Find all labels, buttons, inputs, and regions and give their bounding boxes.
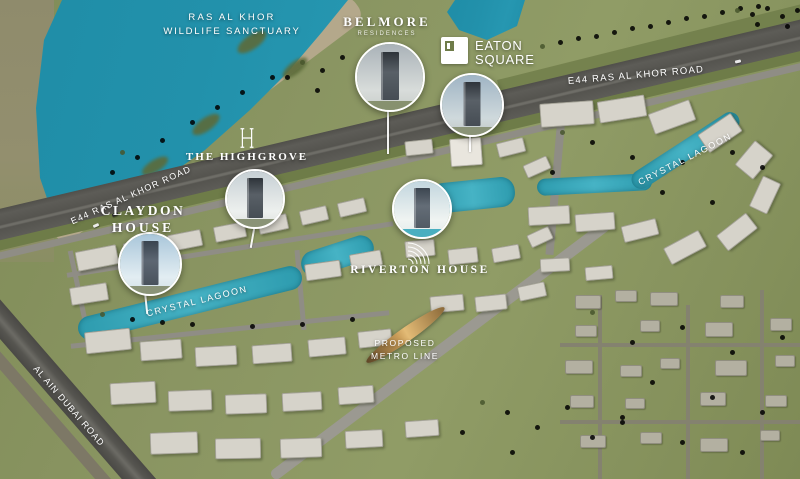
building	[528, 205, 571, 226]
building	[640, 432, 662, 444]
eaton-ground	[442, 127, 502, 135]
grid-road	[760, 290, 764, 479]
eaton-square-building	[449, 137, 483, 167]
building	[251, 343, 292, 365]
building	[575, 295, 601, 309]
building	[215, 438, 261, 460]
sanctuary-label-line1: RAS AL KHOR	[157, 12, 307, 23]
building	[539, 100, 595, 128]
eaton-label-line1: EATON	[475, 38, 545, 53]
claydon-label-line1: CLAYDON	[88, 203, 198, 219]
metro-label-line2: METRO LINE	[355, 351, 455, 361]
building	[620, 218, 659, 243]
building	[700, 392, 726, 406]
building	[749, 175, 781, 214]
grid-road	[598, 295, 602, 479]
trees	[560, 130, 565, 135]
building	[540, 257, 571, 273]
building	[716, 212, 758, 251]
building	[574, 212, 615, 233]
building	[570, 395, 594, 408]
highgrove-ground	[227, 219, 283, 227]
building	[770, 318, 792, 331]
claydon-ground	[120, 286, 180, 294]
building	[474, 293, 507, 312]
trees	[100, 312, 105, 317]
building	[404, 139, 433, 157]
building	[625, 398, 645, 409]
belmore-ground	[357, 101, 423, 110]
belmore-label: BELMORE	[332, 14, 442, 30]
building	[720, 295, 744, 308]
building	[337, 197, 368, 218]
building	[575, 325, 597, 337]
building	[84, 328, 132, 355]
grid-road	[560, 420, 800, 424]
belmore-tower	[381, 52, 399, 100]
metro-label-line1: PROPOSED	[355, 338, 455, 348]
building	[299, 205, 330, 226]
trees	[480, 400, 485, 405]
building	[565, 360, 593, 374]
building	[337, 385, 374, 405]
building	[640, 320, 660, 332]
building	[404, 419, 439, 438]
grid-road	[560, 343, 800, 347]
riverton-ripple-icon	[402, 236, 438, 266]
belmore-pointer	[387, 106, 389, 154]
building	[650, 292, 678, 306]
claydon-label-line2: HOUSE	[88, 220, 198, 236]
building	[109, 381, 156, 405]
claydon-tower	[142, 241, 159, 285]
trees	[735, 8, 740, 13]
sanctuary-label-line2: WILDLIFE SANCTUARY	[142, 26, 322, 37]
eaton-marker[interactable]	[440, 73, 504, 137]
belmore-subtitle: RESIDENCES	[332, 31, 442, 37]
building	[168, 389, 213, 412]
building	[195, 345, 238, 367]
building	[705, 322, 733, 337]
building	[580, 435, 606, 448]
building	[491, 244, 521, 264]
highgrove-label: THE HIGHGROVE	[167, 151, 327, 163]
building	[775, 355, 795, 367]
highgrove-monogram-icon	[235, 126, 259, 150]
building	[620, 365, 642, 377]
building	[660, 358, 680, 369]
building	[584, 265, 613, 281]
trees	[120, 150, 125, 155]
building	[282, 391, 323, 412]
building	[522, 155, 551, 178]
claydon-marker[interactable]	[118, 232, 182, 296]
building	[225, 393, 268, 414]
riverton-marker[interactable]	[392, 179, 452, 239]
eaton-square-logo-icon	[441, 37, 468, 64]
highgrove-tower	[247, 178, 263, 218]
trees	[300, 60, 305, 65]
belmore-marker[interactable]	[355, 42, 425, 112]
building	[765, 395, 787, 407]
trees	[590, 310, 595, 315]
building	[663, 230, 707, 266]
highgrove-marker[interactable]	[225, 169, 285, 229]
building	[139, 339, 182, 362]
building	[700, 438, 728, 452]
masterplan-map: RAS AL KHOR WILDLIFE SANCTUARY E44 RAS A…	[0, 0, 800, 479]
building	[735, 140, 774, 180]
grid-road	[686, 305, 690, 479]
building	[280, 437, 323, 458]
eaton-label-line2: SQUARE	[475, 52, 545, 67]
building	[715, 360, 747, 376]
riverton-tower	[414, 188, 430, 228]
riverton-label: RIVERTON HOUSE	[330, 264, 510, 276]
building	[307, 336, 346, 357]
eaton-tower	[464, 82, 481, 126]
building	[345, 429, 384, 449]
crystal-lagoon-label-right: CRYSTAL LAGOON	[629, 127, 740, 190]
building	[447, 246, 479, 265]
building	[760, 430, 780, 441]
building	[150, 431, 199, 455]
water-inlet	[447, 0, 527, 42]
building	[615, 290, 637, 302]
